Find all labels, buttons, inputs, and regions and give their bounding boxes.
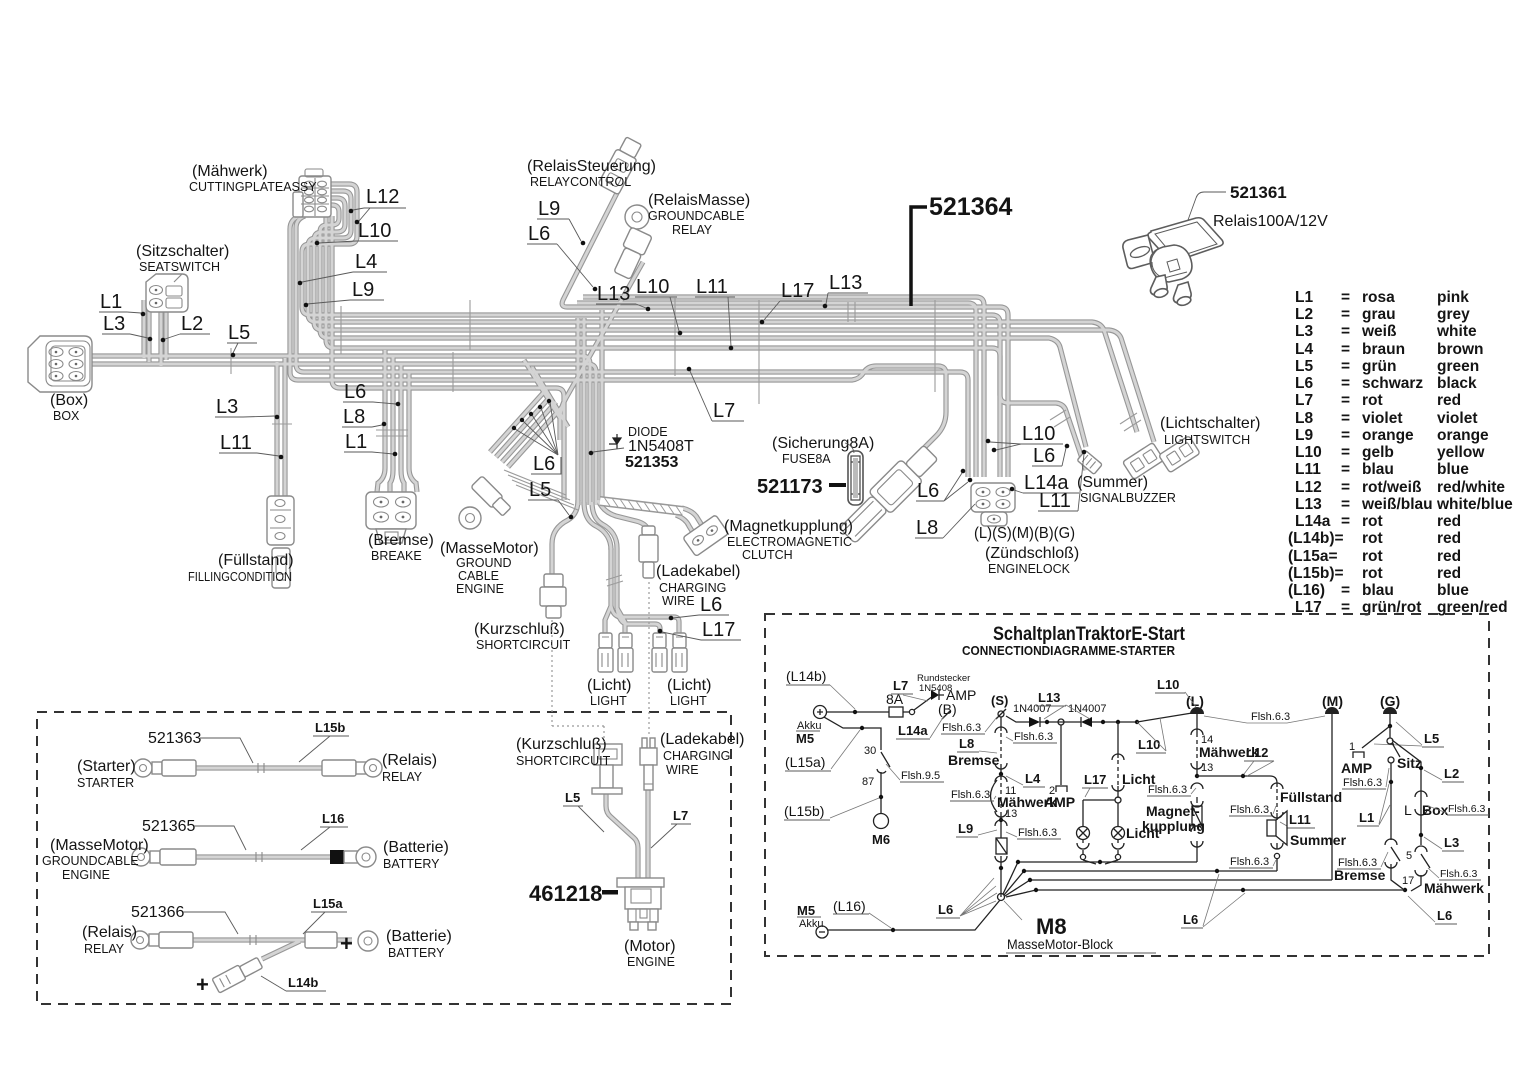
svg-text:(L15a): (L15a) <box>785 754 825 770</box>
svg-text:L11: L11 <box>1039 490 1071 512</box>
svg-text:RELAY: RELAY <box>382 770 423 784</box>
svg-text:CABLE: CABLE <box>458 569 499 583</box>
svg-text:gelb: gelb <box>1362 444 1394 461</box>
svg-text:(L16): (L16) <box>833 898 866 914</box>
svg-text:Box: Box <box>1422 802 1449 818</box>
svg-text:L1: L1 <box>345 431 367 453</box>
svg-text:Flsh.9.5: Flsh.9.5 <box>901 770 940 782</box>
svg-text:L11: L11 <box>1289 812 1311 827</box>
svg-text:GROUNDCABLE: GROUNDCABLE <box>42 854 139 868</box>
svg-text:(Mähwerk): (Mähwerk) <box>192 163 268 180</box>
svg-text:M5: M5 <box>796 731 814 746</box>
svg-text:L10: L10 <box>636 276 669 298</box>
svg-text:(Relais): (Relais) <box>82 924 137 941</box>
svg-text:FUSE8A: FUSE8A <box>782 452 831 466</box>
svg-text:RELAY: RELAY <box>672 223 713 237</box>
svg-text:rot: rot <box>1362 513 1383 530</box>
svg-text:SHORTCIRCUIT: SHORTCIRCUIT <box>476 638 571 652</box>
svg-text:L10: L10 <box>1157 677 1179 692</box>
svg-text:(Lichtschalter): (Lichtschalter) <box>1160 415 1260 432</box>
svg-text:L6: L6 <box>1437 908 1452 923</box>
svg-text:521365: 521365 <box>142 818 195 835</box>
svg-text:L5: L5 <box>529 479 551 501</box>
svg-text:brown: brown <box>1437 341 1484 358</box>
svg-text:WIRE: WIRE <box>662 594 695 608</box>
svg-text:rosa: rosa <box>1362 289 1395 306</box>
svg-text:L1: L1 <box>1295 289 1313 306</box>
svg-text:L10: L10 <box>1295 444 1322 461</box>
svg-text:L8: L8 <box>343 406 365 428</box>
svg-text:L4: L4 <box>1295 341 1313 358</box>
svg-text:orange: orange <box>1437 427 1489 444</box>
svg-text:(S): (S) <box>991 693 1008 708</box>
svg-text:=: = <box>1341 306 1350 323</box>
svg-text:red: red <box>1437 530 1461 547</box>
svg-text:=: = <box>1341 582 1350 599</box>
svg-text:L13: L13 <box>829 272 862 294</box>
svg-text:(L)(S)(M)(B)(G): (L)(S)(M)(B)(G) <box>974 525 1075 542</box>
svg-text:L14a: L14a <box>898 723 928 738</box>
svg-text:grey: grey <box>1437 306 1470 323</box>
svg-text:Bremse: Bremse <box>1334 867 1386 883</box>
svg-text:CONNECTIONDIAGRAMME-STARTER: CONNECTIONDIAGRAMME-STARTER <box>962 643 1176 658</box>
svg-text:L8: L8 <box>1295 410 1313 427</box>
svg-text:violet: violet <box>1437 410 1477 427</box>
svg-text:521363: 521363 <box>148 730 201 747</box>
svg-text:yellow: yellow <box>1437 444 1485 461</box>
svg-text:1N5408T: 1N5408T <box>628 438 694 455</box>
svg-text:L9: L9 <box>1295 427 1313 444</box>
svg-text:BREAKE: BREAKE <box>371 549 422 563</box>
svg-text:L10: L10 <box>1022 423 1055 445</box>
svg-text:1N4007: 1N4007 <box>1068 703 1107 715</box>
svg-text:L9: L9 <box>538 198 560 220</box>
svg-text:L13: L13 <box>597 283 630 305</box>
svg-text:L6: L6 <box>533 453 555 475</box>
svg-text:L11: L11 <box>696 276 728 298</box>
svg-text:(L15b)=: (L15b)= <box>1288 565 1344 582</box>
svg-text:L2: L2 <box>1444 766 1459 781</box>
svg-text:L4: L4 <box>355 251 377 273</box>
svg-text:L7: L7 <box>893 678 908 693</box>
svg-text:M5: M5 <box>797 903 815 918</box>
svg-text:(Relais): (Relais) <box>382 752 437 769</box>
svg-text:(Starter): (Starter) <box>77 758 136 775</box>
svg-text:(L14b)=: (L14b)= <box>1288 530 1344 547</box>
svg-text:L7: L7 <box>1295 392 1313 409</box>
svg-text:schwarz: schwarz <box>1362 375 1423 392</box>
svg-text:blau: blau <box>1362 582 1394 599</box>
svg-text:L17: L17 <box>702 619 735 641</box>
svg-text:blue: blue <box>1437 582 1469 599</box>
svg-text:=: = <box>1341 392 1350 409</box>
svg-text:L3: L3 <box>103 313 125 335</box>
svg-text:LIGHT: LIGHT <box>670 694 707 708</box>
svg-text:(Ladekabel): (Ladekabel) <box>660 731 745 748</box>
svg-text:braun: braun <box>1362 341 1405 358</box>
svg-text:(L14b): (L14b) <box>786 668 826 684</box>
svg-text:SIGNALBUZZER: SIGNALBUZZER <box>1080 491 1176 505</box>
svg-text:521364: 521364 <box>929 193 1013 221</box>
svg-text:(MasseMotor): (MasseMotor) <box>440 540 539 557</box>
svg-text:=: = <box>1341 323 1350 340</box>
svg-text:L15b: L15b <box>315 720 345 735</box>
svg-text:grau: grau <box>1362 306 1396 323</box>
svg-text:30: 30 <box>864 745 876 757</box>
svg-text:L6: L6 <box>1033 445 1055 467</box>
svg-text:L12: L12 <box>366 186 399 208</box>
svg-text:ENGINE: ENGINE <box>456 582 504 596</box>
svg-text:M8: M8 <box>1036 914 1067 939</box>
svg-text:Flsh.6.3: Flsh.6.3 <box>1018 827 1057 839</box>
svg-text:WIRE: WIRE <box>666 763 699 777</box>
svg-text:CHARGING: CHARGING <box>663 749 730 763</box>
svg-text:ENGINE: ENGINE <box>627 955 675 969</box>
svg-text:L3: L3 <box>216 396 238 418</box>
svg-text:521361: 521361 <box>1230 183 1287 202</box>
svg-text:CUTTINGPLATEASSY: CUTTINGPLATEASSY <box>189 180 317 194</box>
svg-text:(Füllstand): (Füllstand) <box>218 552 294 569</box>
svg-text:(Ladekabel): (Ladekabel) <box>656 563 741 580</box>
svg-text:Flsh.6.3: Flsh.6.3 <box>1448 803 1486 815</box>
svg-text:green: green <box>1437 358 1479 375</box>
svg-text:(B): (B) <box>938 701 957 717</box>
svg-text:1: 1 <box>1349 741 1355 753</box>
svg-text:red/white: red/white <box>1437 479 1505 496</box>
svg-text:red: red <box>1437 565 1461 582</box>
svg-text:=: = <box>1341 444 1350 461</box>
svg-text:Flsh.6.3: Flsh.6.3 <box>942 722 981 734</box>
svg-text:black: black <box>1437 375 1477 392</box>
svg-text:Flsh.6.3: Flsh.6.3 <box>1343 777 1382 789</box>
svg-text:(Batterie): (Batterie) <box>383 839 449 856</box>
svg-text:L13: L13 <box>1038 690 1060 705</box>
svg-text:(Magnetkupplung): (Magnetkupplung) <box>724 518 853 535</box>
svg-text:L6: L6 <box>700 594 722 616</box>
svg-text:521353: 521353 <box>625 454 678 471</box>
svg-text:L1: L1 <box>100 291 122 313</box>
svg-text:(G): (G) <box>1380 693 1400 709</box>
svg-text:8A: 8A <box>886 691 904 707</box>
svg-text:rot: rot <box>1362 530 1383 547</box>
svg-text:red: red <box>1437 513 1461 530</box>
svg-text:Flsh.6.3: Flsh.6.3 <box>1440 868 1478 880</box>
svg-text:L12: L12 <box>1246 745 1268 760</box>
svg-text:grün: grün <box>1362 358 1396 375</box>
svg-text:Mähwerk: Mähwerk <box>1424 880 1484 896</box>
svg-text:Magnet-: Magnet- <box>1146 803 1200 819</box>
svg-text:(L15b): (L15b) <box>784 803 824 819</box>
svg-text:Flsh.6.3: Flsh.6.3 <box>1148 784 1187 796</box>
svg-text:L9: L9 <box>958 821 973 836</box>
svg-text:L12: L12 <box>1295 479 1322 496</box>
svg-text:LIGHT: LIGHT <box>590 694 627 708</box>
svg-text:STARTER: STARTER <box>77 776 134 790</box>
svg-text:RELAYCONTROL: RELAYCONTROL <box>530 175 631 189</box>
svg-text:M6: M6 <box>872 832 890 847</box>
svg-text:FILLINGCONDITION: FILLINGCONDITION <box>188 570 292 584</box>
svg-text:=: = <box>1341 496 1350 513</box>
svg-text:L2: L2 <box>181 313 203 335</box>
svg-text:Füllstand: Füllstand <box>1280 789 1342 805</box>
svg-text:L11: L11 <box>1295 461 1321 478</box>
svg-text:(L16): (L16) <box>1288 582 1325 599</box>
svg-text:rot: rot <box>1362 565 1383 582</box>
svg-text:weiß/blau: weiß/blau <box>1361 496 1433 513</box>
svg-text:(Motor): (Motor) <box>624 938 676 955</box>
svg-text:orange: orange <box>1362 427 1414 444</box>
svg-text:Bremse: Bremse <box>948 752 1000 768</box>
svg-text:(Licht): (Licht) <box>667 677 711 694</box>
svg-text:BATTERY: BATTERY <box>388 946 445 960</box>
svg-text:L6: L6 <box>938 902 953 917</box>
svg-text:L4: L4 <box>1025 771 1041 786</box>
svg-text:Sitz: Sitz <box>1397 755 1422 771</box>
svg-text:SchaltplanTraktorE-Start: SchaltplanTraktorE-Start <box>993 623 1185 645</box>
svg-text:(Zündschloß): (Zündschloß) <box>985 545 1079 562</box>
svg-text:L15a: L15a <box>313 896 343 911</box>
svg-text:L17: L17 <box>781 280 814 302</box>
svg-text:L7: L7 <box>713 400 735 422</box>
svg-text:rot: rot <box>1362 392 1383 409</box>
svg-text:=: = <box>1341 479 1350 496</box>
svg-text:Flsh.6.3: Flsh.6.3 <box>1230 856 1269 868</box>
svg-text:weiß: weiß <box>1361 323 1397 340</box>
svg-text:white: white <box>1436 323 1477 340</box>
svg-text:L3: L3 <box>1444 835 1459 850</box>
svg-text:=: = <box>1341 289 1350 306</box>
svg-text:L16: L16 <box>322 811 344 826</box>
svg-text:(Kurzschluß): (Kurzschluß) <box>474 621 565 638</box>
svg-text:SHORTCIRCUIT: SHORTCIRCUIT <box>516 754 611 768</box>
svg-text:(RelaisMasse): (RelaisMasse) <box>648 192 750 209</box>
svg-text:CHARGING: CHARGING <box>659 581 726 595</box>
svg-text:1N5408: 1N5408 <box>919 683 952 694</box>
svg-text:L: L <box>1404 802 1412 818</box>
svg-text:+: + <box>340 931 353 956</box>
svg-text:blue: blue <box>1437 461 1469 478</box>
svg-text:L5: L5 <box>1424 731 1439 746</box>
svg-text:(Sitzschalter): (Sitzschalter) <box>136 243 229 260</box>
svg-text:L9: L9 <box>352 279 374 301</box>
svg-text:L6: L6 <box>344 381 366 403</box>
svg-text:+: + <box>196 972 209 997</box>
svg-text:=: = <box>1341 461 1350 478</box>
svg-text:=: = <box>1341 375 1350 392</box>
svg-text:(M): (M) <box>1322 693 1343 709</box>
svg-text:L17: L17 <box>1084 772 1106 787</box>
svg-text:(Summer): (Summer) <box>1077 474 1148 491</box>
svg-text:blau: blau <box>1362 461 1394 478</box>
svg-text:SEATSWITCH: SEATSWITCH <box>139 260 220 274</box>
svg-text:BATTERY: BATTERY <box>383 857 440 871</box>
svg-text:Akku: Akku <box>799 918 823 930</box>
svg-text:87: 87 <box>862 776 874 788</box>
svg-text:Flsh.6.3: Flsh.6.3 <box>1230 804 1269 816</box>
svg-text:white/blue: white/blue <box>1436 496 1513 513</box>
svg-text:red: red <box>1437 548 1461 565</box>
svg-text:Flsh.6.3: Flsh.6.3 <box>951 789 990 801</box>
svg-text:GROUNDCABLE: GROUNDCABLE <box>648 209 745 223</box>
svg-text:=: = <box>1341 513 1350 530</box>
svg-text:L1: L1 <box>1359 810 1374 825</box>
svg-text:ENGINE: ENGINE <box>62 868 110 882</box>
svg-text:L3: L3 <box>1295 323 1313 340</box>
svg-text:L5: L5 <box>228 322 250 344</box>
svg-text:L13: L13 <box>1295 496 1322 513</box>
svg-text:Flsh.6.3: Flsh.6.3 <box>1014 731 1053 743</box>
svg-text:AMP: AMP <box>1044 794 1075 810</box>
svg-text:L10: L10 <box>1138 737 1160 752</box>
svg-text:ELECTROMAGNETIC: ELECTROMAGNETIC <box>727 535 852 549</box>
svg-text:DIODE: DIODE <box>628 425 668 439</box>
svg-text:L6: L6 <box>917 480 939 502</box>
svg-text:(Bremse): (Bremse) <box>368 532 434 549</box>
svg-text:BOX: BOX <box>53 409 80 423</box>
svg-text:GROUND: GROUND <box>456 556 512 570</box>
svg-text:Relais100A/12V: Relais100A/12V <box>1213 213 1328 230</box>
svg-text:L14a: L14a <box>1295 513 1331 530</box>
svg-text:(Batterie): (Batterie) <box>386 928 452 945</box>
svg-text:521366: 521366 <box>131 904 184 921</box>
svg-text:=: = <box>1341 427 1350 444</box>
svg-text:MasseMotor-Block: MasseMotor-Block <box>1007 937 1113 952</box>
svg-text:ENGINELOCK: ENGINELOCK <box>988 562 1071 576</box>
svg-text:L8: L8 <box>916 517 938 539</box>
svg-text:L14b: L14b <box>288 975 318 990</box>
svg-text:17: 17 <box>1402 875 1414 887</box>
svg-text:=: = <box>1341 358 1350 375</box>
svg-text:(Kurzschluß): (Kurzschluß) <box>516 736 607 753</box>
svg-text:L5: L5 <box>565 790 580 805</box>
svg-text:rot: rot <box>1362 548 1383 565</box>
svg-text:rot/weiß: rot/weiß <box>1362 479 1422 496</box>
svg-text:(L): (L) <box>1186 693 1204 709</box>
svg-text:5: 5 <box>1406 850 1412 862</box>
svg-text:=: = <box>1341 410 1350 427</box>
svg-text:521173: 521173 <box>757 476 823 498</box>
svg-text:RELAY: RELAY <box>84 942 125 956</box>
svg-text:L8: L8 <box>959 736 974 751</box>
svg-text:L10: L10 <box>358 220 391 242</box>
svg-text:461218: 461218 <box>529 881 602 906</box>
svg-text:violet: violet <box>1362 410 1402 427</box>
svg-text:(Licht): (Licht) <box>587 677 631 694</box>
svg-text:L6: L6 <box>1183 912 1198 927</box>
svg-text:L6: L6 <box>528 223 550 245</box>
svg-text:L2: L2 <box>1295 306 1313 323</box>
svg-text:L11: L11 <box>220 432 252 454</box>
svg-text:(L15a=: (L15a= <box>1288 548 1338 565</box>
svg-text:L6: L6 <box>1295 375 1313 392</box>
svg-text:Summer: Summer <box>1290 832 1347 848</box>
svg-text:LIGHTSWITCH: LIGHTSWITCH <box>1164 433 1250 447</box>
svg-text:(RelaisSteuerung): (RelaisSteuerung) <box>527 158 656 175</box>
svg-text:Flsh.6.3: Flsh.6.3 <box>1251 711 1290 723</box>
svg-text:(MasseMotor): (MasseMotor) <box>50 837 149 854</box>
svg-text:AMP: AMP <box>1341 760 1372 776</box>
svg-text:CLUTCH: CLUTCH <box>742 548 793 562</box>
svg-text:red: red <box>1437 392 1461 409</box>
svg-text:pink: pink <box>1437 289 1469 306</box>
svg-text:(Sicherung8A): (Sicherung8A) <box>772 435 874 452</box>
svg-text:=: = <box>1341 341 1350 358</box>
svg-text:L7: L7 <box>673 808 688 823</box>
svg-text:L5: L5 <box>1295 358 1313 375</box>
svg-text:(Box): (Box) <box>50 392 88 409</box>
